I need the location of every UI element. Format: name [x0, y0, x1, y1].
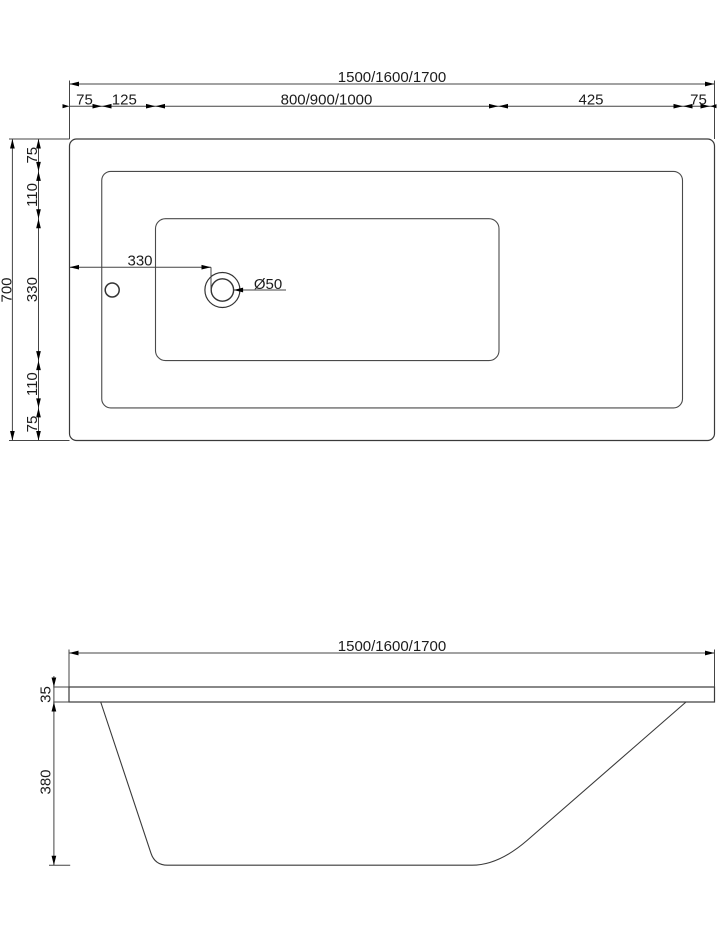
svg-text:800/900/1000: 800/900/1000: [281, 91, 373, 108]
svg-text:330: 330: [127, 253, 152, 270]
svg-text:75: 75: [24, 147, 41, 164]
svg-text:380: 380: [37, 769, 54, 794]
svg-text:125: 125: [112, 91, 137, 108]
svg-text:425: 425: [578, 91, 603, 108]
svg-text:75: 75: [76, 91, 93, 108]
svg-text:1500/1600/1700: 1500/1600/1700: [338, 638, 446, 655]
svg-text:75: 75: [690, 91, 707, 108]
svg-text:330: 330: [24, 277, 41, 302]
svg-text:110: 110: [24, 183, 41, 207]
svg-text:75: 75: [24, 416, 41, 433]
svg-text:700: 700: [0, 277, 15, 302]
svg-text:35: 35: [37, 686, 54, 703]
svg-text:1500/1600/1700: 1500/1600/1700: [338, 69, 446, 86]
svg-text:Ø50: Ø50: [254, 276, 282, 293]
svg-text:110: 110: [24, 372, 41, 396]
